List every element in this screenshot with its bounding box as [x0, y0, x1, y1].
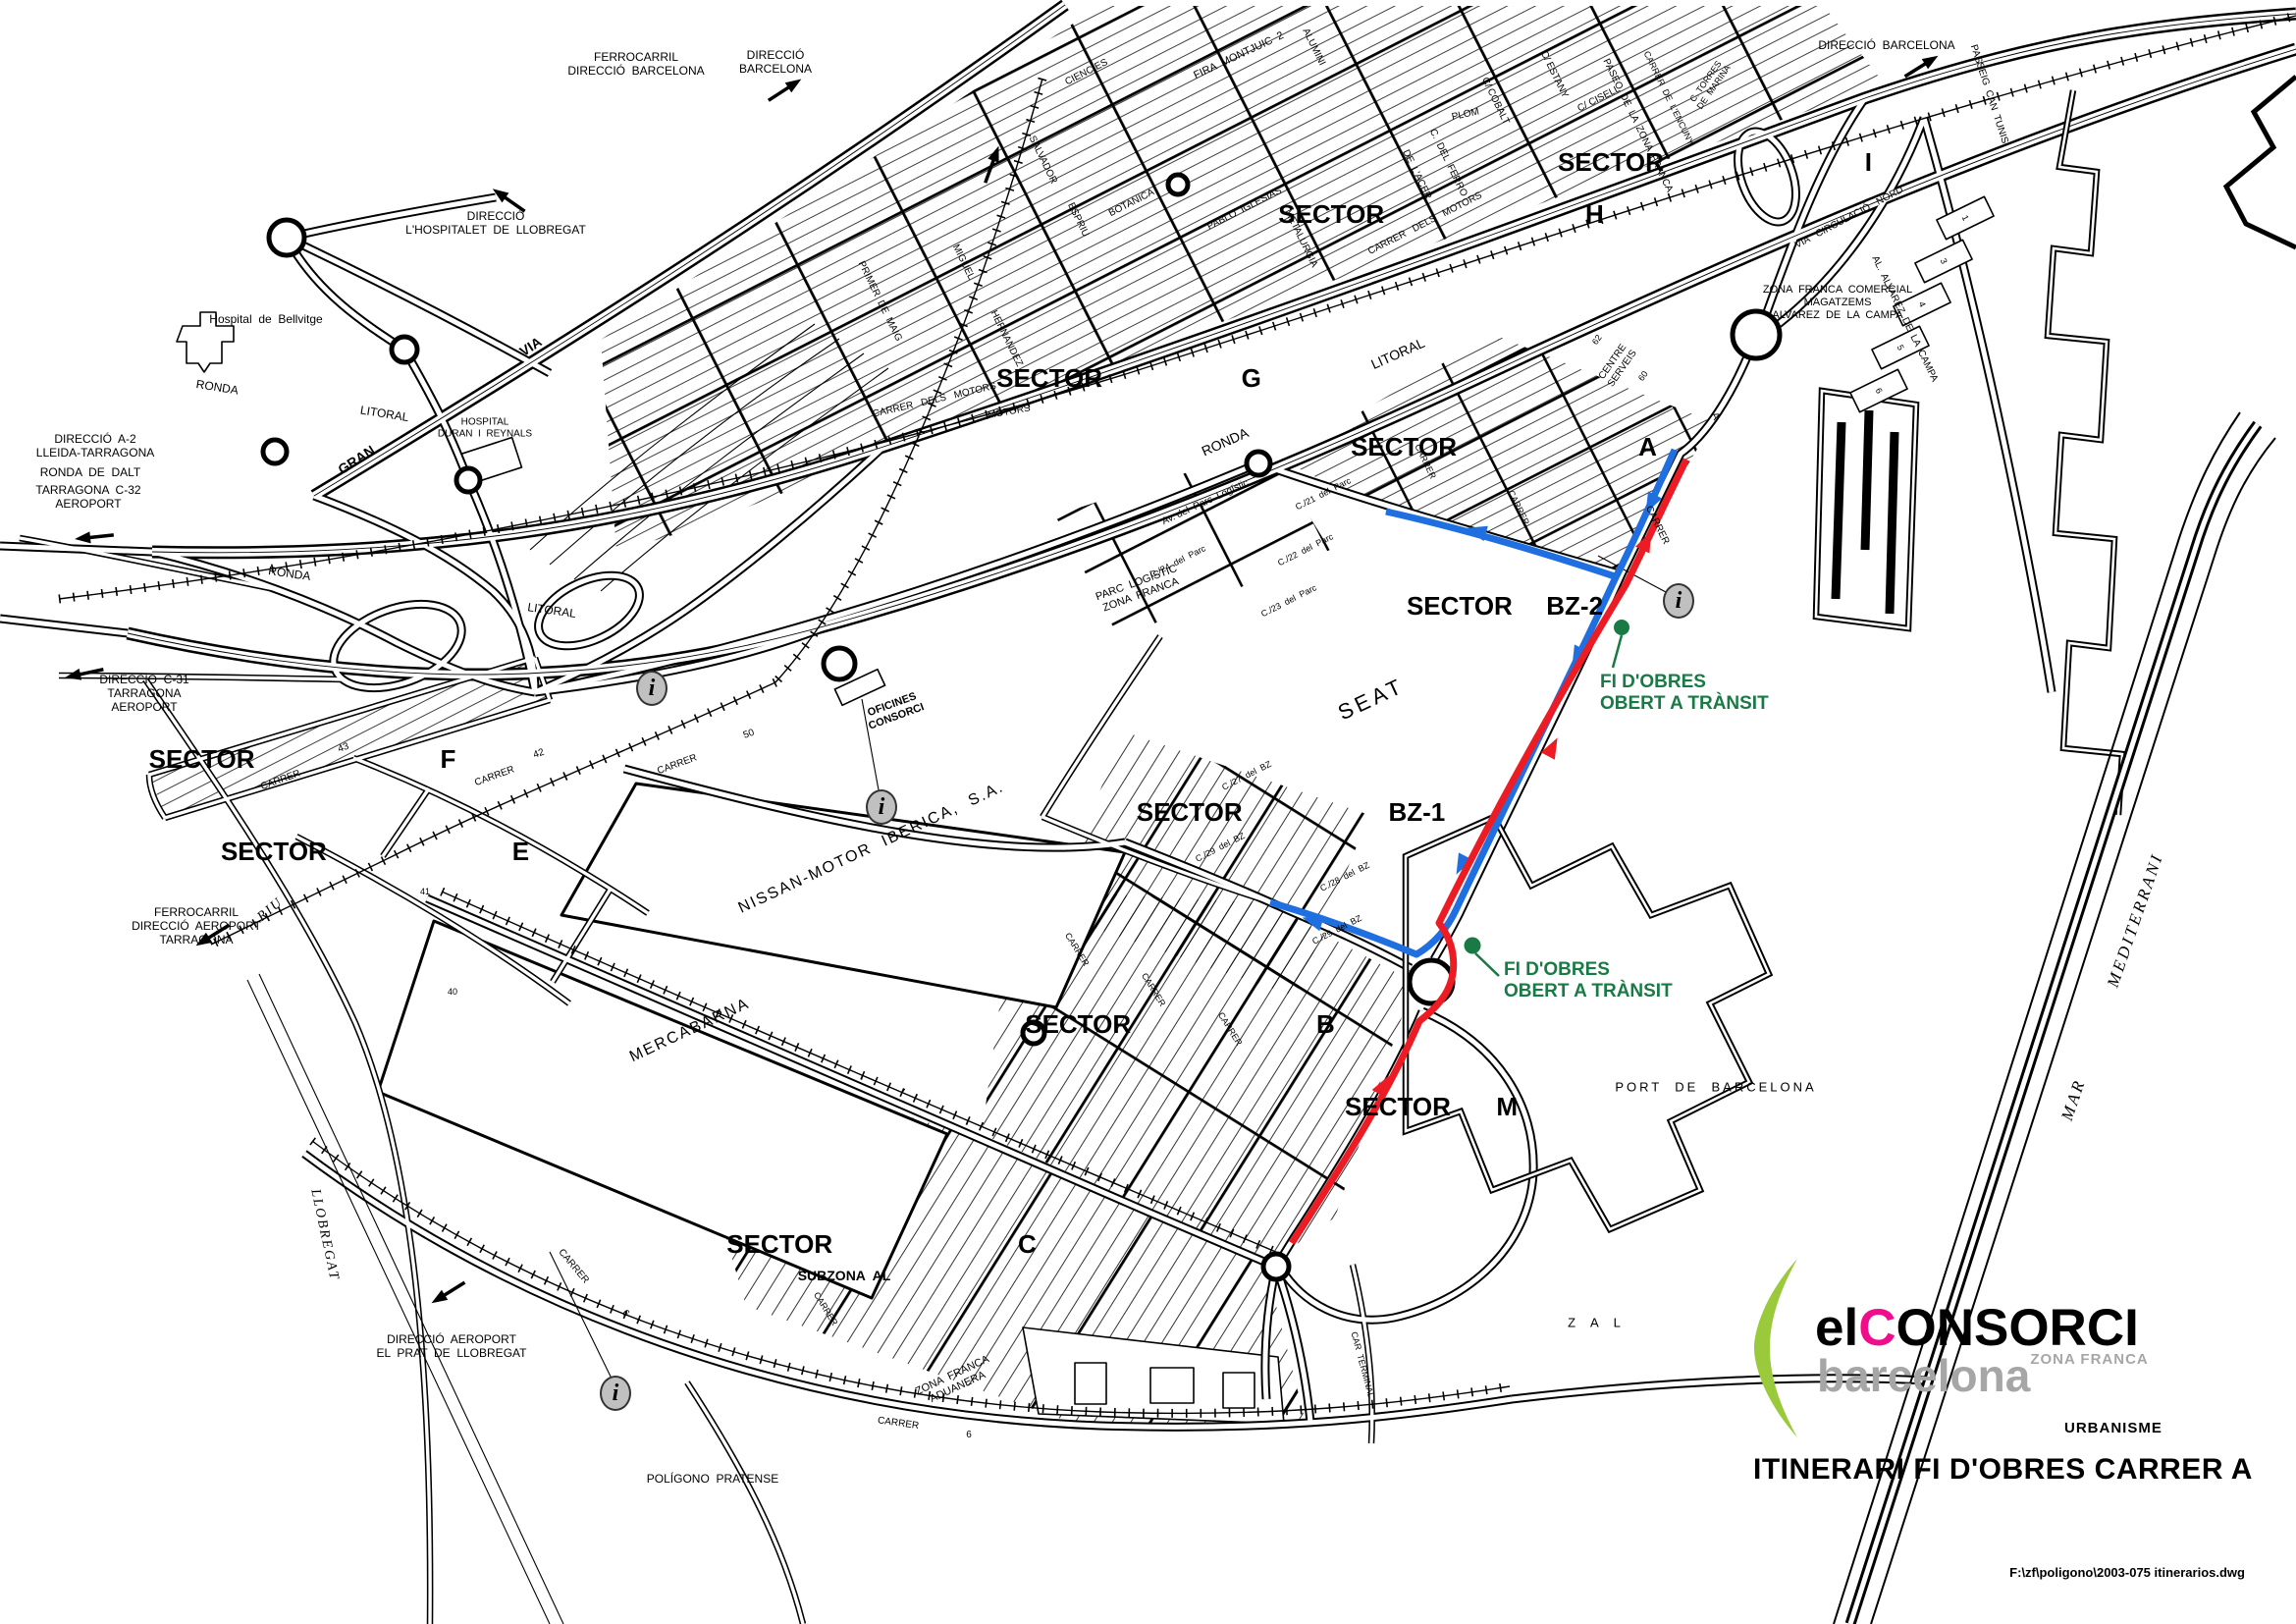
logo-barcelona-line: barcelonaZONA FRANCA: [1817, 1349, 2149, 1402]
sector-bz1: SECTOR BZ-1: [1137, 797, 1446, 827]
carrer-a-street: CARRER: [1643, 504, 1672, 546]
subzona-al: SUBZONA AL: [798, 1268, 891, 1283]
ronda-de-dalt: RONDA DE DALT: [40, 466, 140, 480]
carrer-50: CARRER: [656, 752, 699, 777]
c-cobalt: C/ COBALT: [1478, 76, 1511, 127]
num-6w: 6: [619, 1308, 631, 1320]
hospital-bellvitge: Hospital de Bellvitge: [209, 313, 322, 327]
sector-c: SECTOR C: [726, 1229, 1037, 1259]
direccio-c31: DIRECCIÓ C-31 TARRAGONA AEROPORT: [99, 674, 188, 715]
direccio-a2: DIRECCIÓ A-2 LLEIDA-TARRAGONA: [36, 433, 154, 460]
num-50: 50: [742, 728, 756, 742]
sector-f: SECTOR F: [149, 744, 456, 774]
port-de-barcelona: PORT DE BARCELONA: [1615, 1079, 1816, 1094]
fi-obres-nord: FI D'OBRES OBERT A TRÀNSIT: [1600, 672, 1769, 715]
sector-b: SECTOR B: [1025, 1009, 1335, 1039]
ronda-e: RONDA: [1200, 424, 1252, 459]
pablo-iglesias: PABLO IGLESIAS: [1205, 186, 1284, 233]
carrer-sb1: CARRER: [1063, 931, 1092, 968]
llobregat: LLOBREGAT: [306, 1188, 342, 1283]
fira-montjuic: FIRA MONTJUIC 2: [1192, 29, 1286, 82]
oficines-consorci: OFICINES CONSORCI: [863, 689, 926, 732]
poligono-pratense: POLÍGONO PRATENSE: [647, 1473, 778, 1487]
logo-paren: [1750, 1255, 1801, 1441]
carrer-sb2: CARRER: [1140, 971, 1168, 1008]
num-60: 60: [1636, 369, 1650, 383]
espriu: ESPRIU: [1065, 201, 1092, 240]
num-6s: 6: [966, 1430, 972, 1441]
motors: MOTORS: [987, 403, 1031, 421]
pier-5: 5: [1895, 343, 1906, 352]
sector-m: SECTOR M: [1345, 1092, 1518, 1121]
ferrocarril-aeroport: FERROCARRIL DIRECCIÓ AEROPORT TARRAGONA: [132, 906, 261, 947]
pier-3: 3: [1938, 256, 1949, 265]
carrer-42: CARRER: [473, 764, 516, 788]
logo-zona-franca: ZONA FRANCA: [2030, 1351, 2148, 1368]
ronda-litoral-c: RONDA LITORAL: [267, 565, 576, 622]
carrer-6w: CARRER: [556, 1247, 591, 1286]
mar-mediterrani: MAR MEDITERRANI: [2057, 850, 2167, 1123]
c28-bz: C./28 del BZ: [1318, 860, 1371, 893]
pier-4: 4: [1916, 299, 1928, 308]
miguel: MIGUEL: [949, 243, 976, 282]
tarragona-c32: TARRAGONA C-32 AEROPORT: [35, 484, 140, 512]
c29-bz: C./29 del BZ: [1194, 831, 1247, 864]
ferrocarril-barcelona: FERROCARRIL DIRECCIÓ BARCELONA: [567, 51, 704, 79]
sector-bz2: SECTOR BZ-2: [1407, 591, 1603, 621]
info-icon: i: [1663, 583, 1694, 619]
info-icon: i: [636, 671, 667, 706]
seat: SEAT: [1334, 673, 1409, 725]
ronda-litoral-w: RONDA LITORAL: [195, 378, 410, 425]
pier-6: 6: [1873, 386, 1885, 395]
hernandez: HERNANDEZ: [988, 308, 1025, 368]
de-lacer: DE L'ACER: [1400, 148, 1433, 201]
salvador: SALVADOR: [1026, 135, 1059, 187]
carrer-a-letter: A: [1708, 410, 1723, 422]
ciencies: CIENCIES: [1063, 57, 1109, 88]
centre-serveis: CENTRE SERVEIS: [1596, 342, 1639, 390]
carrer-sc1: CARRER: [812, 1290, 840, 1327]
sector-e: SECTOR E: [221, 837, 529, 866]
botanica: BOTANICA: [1107, 187, 1156, 219]
c23-parc: C./23 del Parc: [1259, 582, 1318, 619]
c27-bz: C./27 del BZ: [1220, 759, 1273, 792]
c-cisell: C/ CISELL: [1575, 83, 1622, 115]
passeig-can-tunis: PASSEIG CAN TUNIS: [1967, 43, 2010, 145]
map-canvas: FERROCARRIL DIRECCIÓ BARCELONADIRECCIÓ B…: [0, 0, 2296, 1624]
torres-de-marina: C. TORRES DE MARINA: [1686, 58, 1733, 112]
c-estany: C/ ESTANY: [1537, 49, 1570, 100]
sheet-title: ITINERARI FI D'OBRES CARRER A: [1753, 1453, 2253, 1487]
carrer-6s: CARRER: [877, 1415, 919, 1432]
info-icon: i: [866, 789, 897, 825]
direccio-barcelona-ne: DIRECCIÓ BARCELONA: [1818, 39, 1954, 53]
litoral-e: LITORAL: [1368, 335, 1427, 372]
carrer-dels-motors-g: CARRER DELS MOTORS: [872, 381, 997, 420]
sector-g: SECTOR G: [996, 363, 1261, 393]
info-icon: i: [600, 1376, 631, 1411]
direccio-hospitalet: DIRECCIÓ L'HOSPITALET DE LLOBREGAT: [405, 210, 586, 238]
carrer-sa2: CARRER: [1506, 489, 1531, 527]
drawing-file-path: F:\zf\poligono\2003-075 itinerarios.dwg: [2009, 1565, 2245, 1580]
via-circulacio-nord: VIA CIRCULACIÓ NORD: [1793, 185, 1905, 251]
c29-bz-2: C./29 del BZ: [1310, 913, 1363, 947]
logo-urbanisme: URBANISME: [2064, 1420, 2163, 1436]
zf-aduanera: ZONA FRANCA ADUANERA: [914, 1353, 996, 1409]
av-parc-logistic: Av. del Parc Logístic: [1160, 478, 1251, 528]
plom: PLOM: [1451, 106, 1480, 123]
num-40: 40: [448, 987, 457, 997]
zal: Z A L: [1568, 1315, 1627, 1329]
direccio-aeroport-prat: DIRECCIÓ AEROPORT EL PRAT DE LLOBREGAT: [377, 1333, 527, 1361]
mercabarna: MERCABARNA: [627, 996, 753, 1067]
hospital-duran: HOSPITAL DURAN I REYNALS: [438, 416, 532, 439]
car-terminal: CAR TERMINAL: [1349, 1330, 1376, 1399]
c22-parc: C./22 del Parc: [1276, 531, 1335, 568]
c-del-ferro: C. DEL FERRO: [1426, 128, 1468, 199]
num-41: 41: [420, 887, 430, 896]
primer-de-maig: PRIMER DE MAIG: [855, 259, 904, 343]
sector-a: SECTOR A: [1351, 432, 1657, 461]
c21-parc: C./21 del Parc: [1294, 475, 1353, 512]
direccio-barcelona-nw: DIRECCIÓ BARCELONA: [739, 49, 812, 77]
alumini: ALUMINI: [1300, 27, 1327, 68]
num-42: 42: [532, 747, 546, 762]
logo-barcelona: barcelona: [1817, 1350, 2030, 1401]
fi-obres-sud: FI D'OBRES OBERT A TRÀNSIT: [1504, 959, 1673, 1002]
num-62: 62: [1590, 333, 1604, 347]
pier-1: 1: [1959, 213, 1971, 222]
sector-i: SECTOR I: [1558, 147, 1872, 177]
